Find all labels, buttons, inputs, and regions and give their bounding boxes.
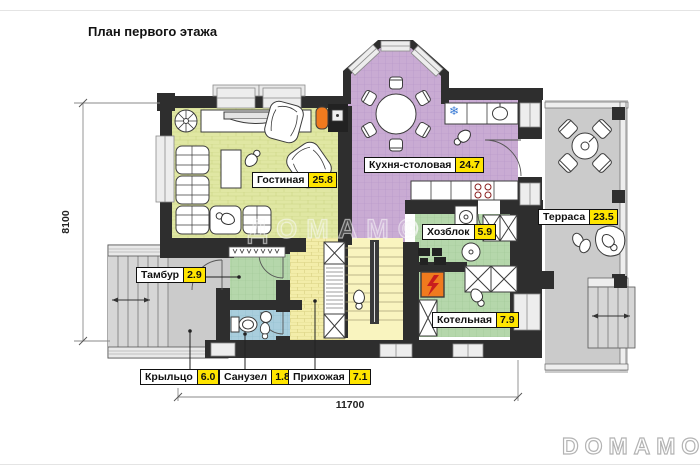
room-name: Терраса (538, 209, 590, 225)
snowflake-icon: ❄ (449, 104, 459, 118)
room-name: Хозблок (422, 224, 475, 240)
terrace-area (545, 100, 635, 373)
label-hozblok: Хозблок5.9 (422, 224, 496, 240)
label-sanuzel: Санузел1.8 (219, 369, 294, 385)
coat-rack-icon (229, 247, 285, 257)
floor-plan-page: План первого этажа (0, 0, 700, 467)
coffee-table-icon (221, 150, 241, 188)
electric-panel-icon (421, 272, 444, 297)
label-krylco: Крыльцо6.0 (140, 369, 219, 385)
label-terrasa: Терраса23.5 (538, 209, 618, 225)
dimension-horizontal: 11700 (323, 399, 377, 411)
dimension-vertical: 8100 (60, 200, 72, 244)
label-gostinaya: Гостиная25.8 (252, 172, 337, 188)
label-prihozhaya: Прихожая7.1 (288, 369, 371, 385)
room-name: Тамбур (136, 267, 184, 283)
kitchen-counter-icon (411, 181, 518, 200)
room-area: 5.9 (475, 224, 497, 240)
label-kotelnaya: Котельная7.9 (432, 312, 519, 328)
room-area: 24.7 (456, 157, 483, 173)
label-tambur: Тамбур2.9 (136, 267, 206, 283)
toilet-icon (231, 317, 257, 332)
terrace-steps-icon (588, 278, 635, 348)
wardrobe-icon (324, 242, 345, 338)
page-title: План первого этажа (88, 24, 217, 39)
room-area: 6.0 (198, 369, 220, 385)
water-heater-icon (462, 243, 480, 261)
dining-table-icon (376, 94, 416, 134)
room-name: Кухня-столовая (364, 157, 456, 173)
room-area: 25.8 (309, 172, 336, 188)
terrace-post (612, 190, 625, 203)
terrace-post (612, 107, 625, 120)
lounge-chair-icon (596, 226, 625, 256)
sink-icon (493, 107, 508, 120)
ceiling-fan-icon (175, 110, 197, 132)
label-kuhnya: Кухня-столовая24.7 (364, 157, 484, 173)
room-area: 7.9 (497, 312, 519, 328)
room-name: Котельная (432, 312, 497, 328)
fireplace-icon (316, 104, 348, 132)
room-name: Санузел (219, 369, 272, 385)
room-name: Прихожая (288, 369, 350, 385)
room-area: 23.5 (590, 209, 617, 225)
room-area: 7.1 (350, 369, 372, 385)
room-area: 2.9 (184, 267, 206, 283)
room-name: Крыльцо (140, 369, 198, 385)
floor-plan (0, 0, 700, 467)
room-name: Гостиная (252, 172, 309, 188)
